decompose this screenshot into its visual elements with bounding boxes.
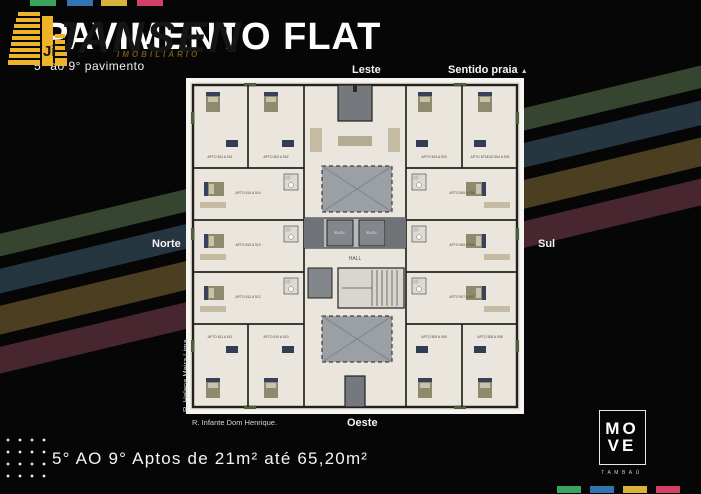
move-logo-subtitle: TAMBAÚ [597,470,647,476]
elevator-label: ELEV. [335,230,346,235]
unit-label: APTO 508 A 908 [477,335,502,339]
building-monogram: Ji [43,43,56,60]
floor-plan: ELEV. ELEV. HALL [186,78,524,414]
chip-green [557,486,581,493]
unit-label: APTO 502 A 902 [263,155,288,159]
direction-label-norte: Norte [152,238,181,250]
slide-canvas: 5° ao 9° pavimento PAVIMENTO FLAT JANSEN… [0,0,701,494]
chip-pink [656,486,680,493]
street-label-infante-dom-henrique: R. Infante Dom Henrique. [192,418,277,427]
chip-blue [590,486,614,493]
move-logo-box: MO VE [599,410,646,465]
dot-grid-decoration [0,431,46,478]
unit-label: APTO 506 A 906 [449,243,474,247]
unit-label: APTO 509 A 909 [421,335,446,339]
chip-green [30,0,56,6]
hall-label: HALL [349,256,362,262]
unit-label: APTO 507 A 907 [449,295,474,299]
chip-pink [137,0,163,6]
unit-label: APTO 505 A 905 [449,191,474,195]
unit-label: APTO 503 A 903 [421,155,446,159]
north-arrow-icon: ▲ [521,68,528,75]
unit-label: APTO STUDIO 504 A 904 [471,155,510,159]
sentido-praia-text: Sentido praia [448,64,518,76]
move-logo: MO VE TAMBAÚ [597,410,647,476]
chip-yellow [623,486,647,493]
direction-label-leste: Leste [352,64,381,76]
unit-label: APTO 512 A 912 [235,295,260,299]
direction-label-sentido-praia: Sentido praia ▲ [448,64,528,76]
unit-label: APTO 514 A 914 [235,191,260,195]
unit-label: APTO 511 A 911 [208,335,233,339]
unit-label: APTO 513 A 913 [235,243,260,247]
building-logo-icon: Ji [8,10,74,74]
direction-label-oeste: Oeste [347,417,378,429]
watermark-imobiliario: IMOBILIÁRIO [117,50,200,59]
street-label-helena-meira-lima: R. Helena Meira Lima. [181,337,190,412]
unit-label: APTO 510 A 910 [263,335,288,339]
move-logo-line2: VE [608,438,637,454]
chip-blue [67,0,93,6]
unit-label: APTO 501 A 901 [207,155,232,159]
elevator-label: ELEV. [367,230,378,235]
area-tagline: 5° AO 9° Aptos de 21m² até 65,20m² [52,449,368,469]
direction-label-sul: Sul [538,238,555,250]
chip-yellow [101,0,127,6]
